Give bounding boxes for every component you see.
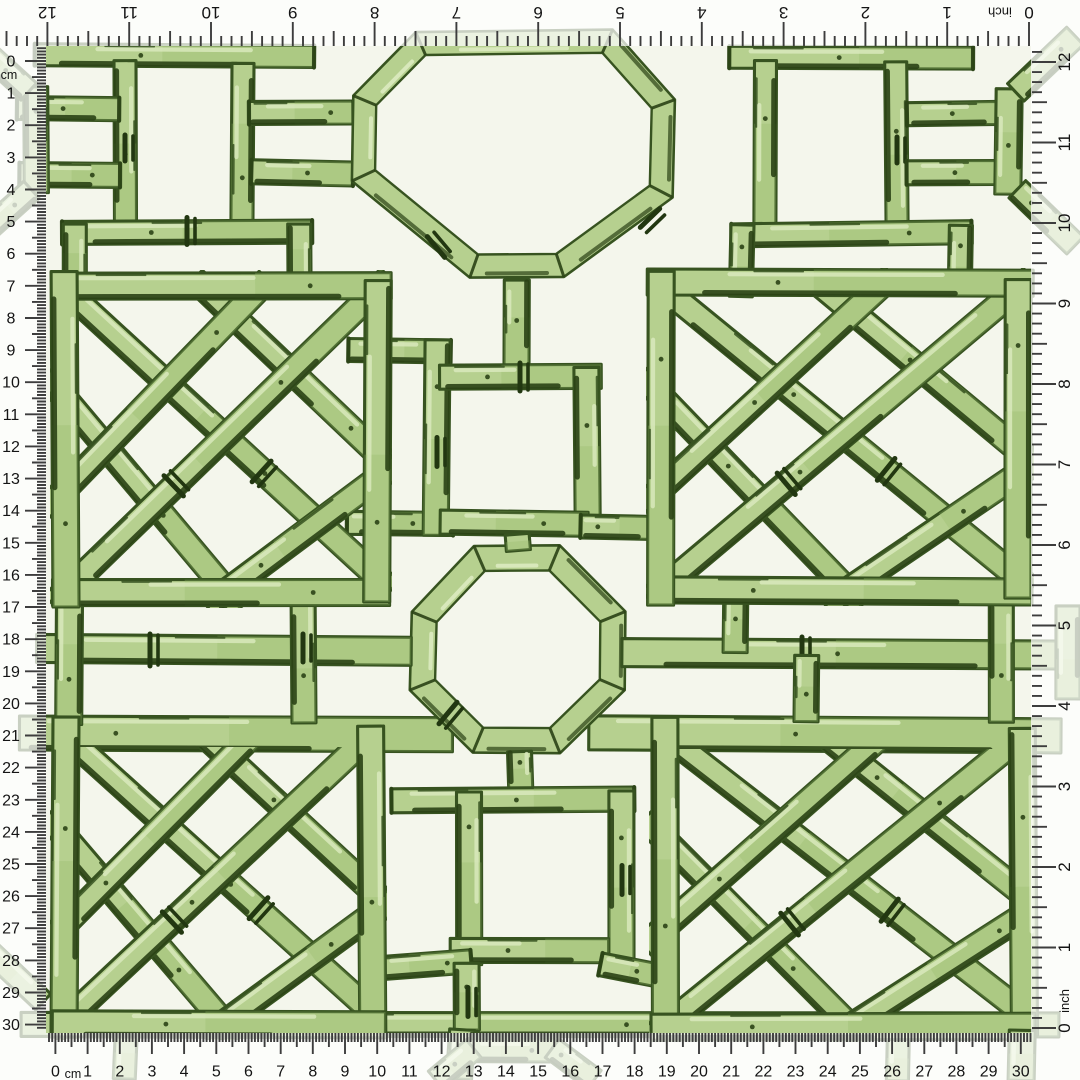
svg-text:1: 1 — [942, 3, 951, 22]
svg-text:0: 0 — [1055, 1023, 1074, 1032]
svg-text:22: 22 — [2, 760, 20, 777]
svg-text:28: 28 — [2, 953, 20, 970]
svg-text:19: 19 — [2, 664, 20, 681]
svg-text:9: 9 — [288, 3, 297, 22]
svg-text:15: 15 — [2, 535, 20, 552]
svg-text:10: 10 — [1055, 214, 1074, 233]
svg-text:8: 8 — [7, 311, 16, 328]
svg-text:12: 12 — [433, 1064, 451, 1080]
svg-text:2: 2 — [861, 3, 870, 22]
svg-text:20: 20 — [690, 1064, 708, 1080]
svg-text:11: 11 — [1055, 134, 1074, 152]
svg-text:27: 27 — [2, 921, 20, 938]
svg-text:23: 23 — [2, 792, 20, 809]
svg-text:cm: cm — [1, 68, 18, 82]
svg-text:cm: cm — [65, 1067, 82, 1080]
svg-text:7: 7 — [276, 1064, 285, 1080]
svg-text:30: 30 — [2, 1017, 20, 1034]
svg-text:14: 14 — [497, 1064, 515, 1080]
svg-text:5: 5 — [212, 1064, 221, 1080]
svg-text:24: 24 — [2, 824, 20, 841]
svg-text:25: 25 — [2, 857, 20, 874]
svg-text:26: 26 — [883, 1064, 901, 1080]
svg-text:10: 10 — [368, 1064, 386, 1080]
svg-text:1: 1 — [7, 86, 16, 103]
svg-text:0: 0 — [51, 1064, 60, 1080]
svg-text:5: 5 — [1055, 621, 1074, 630]
svg-text:12: 12 — [2, 439, 20, 456]
svg-text:29: 29 — [2, 985, 20, 1002]
svg-text:23: 23 — [787, 1064, 805, 1080]
svg-text:24: 24 — [819, 1064, 837, 1080]
svg-text:4: 4 — [697, 3, 706, 22]
svg-text:13: 13 — [2, 471, 20, 488]
svg-text:8: 8 — [1055, 379, 1074, 388]
svg-text:10: 10 — [2, 375, 20, 392]
svg-text:2: 2 — [115, 1064, 124, 1080]
svg-text:7: 7 — [1055, 460, 1074, 469]
svg-text:1: 1 — [83, 1064, 92, 1080]
svg-text:11: 11 — [120, 3, 138, 22]
svg-text:9: 9 — [1055, 299, 1074, 308]
svg-text:3: 3 — [147, 1064, 156, 1080]
svg-text:12: 12 — [1055, 53, 1074, 72]
svg-text:26: 26 — [2, 889, 20, 906]
svg-text:3: 3 — [1055, 782, 1074, 791]
svg-text:5: 5 — [7, 214, 16, 231]
svg-text:4: 4 — [1055, 701, 1074, 710]
svg-text:6: 6 — [1055, 540, 1074, 549]
svg-text:5: 5 — [615, 3, 624, 22]
svg-text:1: 1 — [1055, 943, 1074, 952]
svg-text:30: 30 — [1012, 1064, 1030, 1080]
svg-text:22: 22 — [755, 1064, 773, 1080]
svg-text:21: 21 — [2, 728, 20, 745]
svg-text:6: 6 — [244, 1064, 253, 1080]
svg-text:25: 25 — [851, 1064, 869, 1080]
svg-text:14: 14 — [2, 503, 20, 520]
svg-text:27: 27 — [915, 1064, 933, 1080]
svg-text:8: 8 — [308, 1064, 317, 1080]
svg-text:2: 2 — [7, 118, 16, 135]
svg-text:0: 0 — [1024, 3, 1033, 22]
svg-text:11: 11 — [401, 1064, 418, 1080]
svg-text:29: 29 — [980, 1064, 998, 1080]
svg-text:18: 18 — [626, 1064, 644, 1080]
svg-text:11: 11 — [3, 407, 20, 424]
svg-text:10: 10 — [202, 3, 221, 22]
svg-text:inch: inch — [1057, 989, 1072, 1013]
svg-text:20: 20 — [2, 696, 20, 713]
svg-text:4: 4 — [180, 1064, 189, 1080]
svg-text:28: 28 — [948, 1064, 966, 1080]
svg-text:12: 12 — [38, 3, 57, 22]
svg-text:13: 13 — [465, 1064, 483, 1080]
svg-text:8: 8 — [370, 3, 379, 22]
svg-text:19: 19 — [658, 1064, 676, 1080]
svg-text:2: 2 — [1055, 862, 1074, 871]
svg-text:9: 9 — [7, 343, 16, 360]
svg-text:7: 7 — [7, 278, 16, 295]
svg-text:9: 9 — [341, 1064, 350, 1080]
svg-text:16: 16 — [561, 1064, 579, 1080]
svg-text:15: 15 — [529, 1064, 547, 1080]
svg-text:6: 6 — [7, 246, 16, 263]
svg-text:17: 17 — [594, 1064, 612, 1080]
svg-text:18: 18 — [2, 632, 20, 649]
svg-text:16: 16 — [2, 567, 20, 584]
svg-text:21: 21 — [722, 1064, 740, 1080]
svg-text:3: 3 — [7, 150, 16, 167]
svg-text:4: 4 — [7, 182, 16, 199]
svg-text:3: 3 — [779, 3, 788, 22]
svg-text:17: 17 — [2, 600, 20, 617]
svg-text:inch: inch — [988, 5, 1012, 20]
svg-text:6: 6 — [533, 3, 542, 22]
svg-text:7: 7 — [452, 3, 461, 22]
